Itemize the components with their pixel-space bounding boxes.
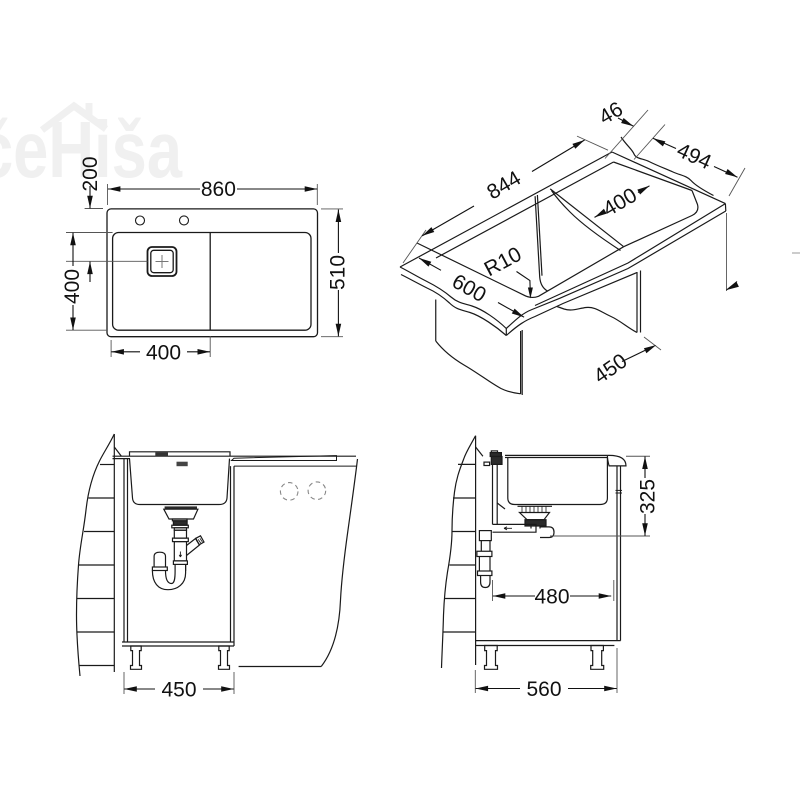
svg-text:400: 400 (146, 341, 181, 364)
svg-text:510: 510 (327, 255, 350, 290)
svg-text:494: 494 (673, 139, 715, 175)
svg-text:450: 450 (590, 349, 632, 388)
svg-text:R10: R10 (481, 243, 526, 281)
svg-text:46: 46 (595, 98, 627, 130)
svg-text:480: 480 (534, 586, 569, 609)
svg-text:200: 200 (79, 156, 102, 191)
svg-text:560: 560 (526, 678, 561, 701)
svg-text:325: 325 (637, 479, 660, 514)
svg-text:860: 860 (201, 178, 236, 201)
svg-text:844: 844 (483, 166, 525, 204)
svg-text:400: 400 (61, 269, 84, 304)
svg-text:400: 400 (599, 184, 641, 221)
svg-text:450: 450 (161, 679, 196, 702)
